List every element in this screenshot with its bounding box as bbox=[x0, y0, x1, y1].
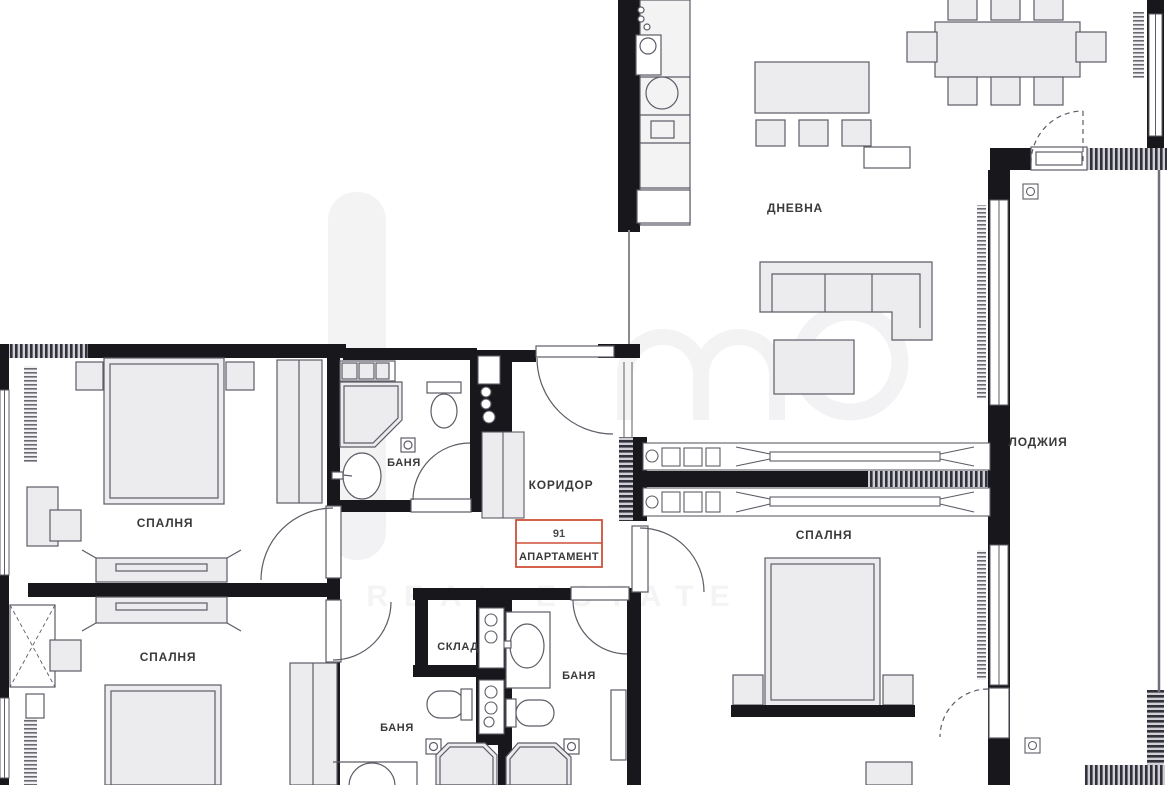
door-frame bbox=[326, 506, 341, 578]
bed bbox=[765, 558, 880, 706]
toilet-tank-icon bbox=[461, 689, 472, 720]
valve-icon bbox=[484, 717, 494, 727]
cabinet bbox=[662, 448, 680, 466]
cabinet bbox=[684, 492, 702, 512]
loggia-fixtures bbox=[1023, 184, 1040, 753]
kitchen-sink-icon bbox=[646, 77, 678, 109]
balcony-door-sill bbox=[1036, 152, 1082, 165]
nightstand bbox=[226, 362, 254, 390]
floor-plan: REAL ESTATE bbox=[0, 0, 1170, 785]
door-frame bbox=[571, 587, 629, 600]
door-frame bbox=[411, 499, 471, 512]
wall-hatched bbox=[1085, 765, 1165, 785]
bar-stool bbox=[799, 120, 828, 146]
vanity-drawer bbox=[376, 363, 389, 379]
chair bbox=[50, 640, 81, 671]
entry-door-frame bbox=[536, 346, 614, 357]
wall bbox=[340, 500, 413, 512]
shower bbox=[340, 382, 402, 447]
sideboard bbox=[755, 62, 869, 113]
dining-table bbox=[935, 22, 1080, 77]
cabinet bbox=[662, 492, 680, 512]
loggia-door-arc bbox=[940, 689, 988, 737]
dresser-mark bbox=[227, 623, 241, 631]
dining-chair bbox=[1076, 32, 1106, 62]
cabinet bbox=[26, 694, 44, 718]
watermark-shape bbox=[625, 337, 777, 420]
dining-chair bbox=[991, 0, 1020, 20]
wall-hatched bbox=[619, 437, 633, 521]
fixture-icon bbox=[646, 450, 658, 462]
toilet-tank-icon bbox=[427, 382, 461, 393]
wall bbox=[415, 597, 428, 667]
door-frame bbox=[632, 526, 648, 592]
bath1-door-arc bbox=[413, 443, 470, 500]
dining-chair bbox=[948, 77, 977, 105]
dresser-mark bbox=[82, 623, 96, 631]
valve-icon bbox=[481, 399, 491, 409]
room-label-corridor: КОРИДОР bbox=[529, 478, 594, 492]
bed bbox=[104, 358, 224, 504]
room-label-storage: СКЛАД bbox=[437, 641, 479, 653]
shower bbox=[506, 743, 571, 785]
wall bbox=[327, 358, 340, 510]
wall bbox=[327, 576, 340, 602]
watermark: REAL ESTATE bbox=[328, 192, 900, 613]
nightstand bbox=[733, 675, 763, 705]
room-label-bedroom2: СПАЛНЯ bbox=[140, 650, 197, 664]
apartment-number: 91 bbox=[553, 528, 565, 540]
cabinet bbox=[706, 492, 720, 512]
vanity-drawer bbox=[359, 363, 374, 379]
bar-stool bbox=[842, 120, 871, 146]
cabinet bbox=[706, 448, 720, 466]
radiator bbox=[24, 366, 37, 462]
shaft-panel bbox=[611, 690, 626, 760]
dining-chair bbox=[1034, 0, 1063, 20]
dining-chair bbox=[1034, 77, 1063, 105]
wall bbox=[343, 348, 477, 360]
bedroom3 bbox=[731, 558, 915, 785]
room-label-bath2: БАНЯ bbox=[380, 722, 414, 734]
knob-icon bbox=[638, 7, 644, 13]
room-label-bedroom1: СПАЛНЯ bbox=[137, 516, 194, 530]
valve-icon bbox=[485, 614, 497, 626]
valve-icon bbox=[485, 702, 497, 714]
knob-icon bbox=[644, 24, 650, 30]
nightstand bbox=[883, 675, 913, 705]
bath2 bbox=[333, 689, 497, 785]
nightstand bbox=[76, 362, 103, 390]
sink-icon bbox=[349, 763, 395, 785]
bed bbox=[105, 685, 221, 785]
bench bbox=[866, 762, 912, 785]
vanity-drawer bbox=[342, 363, 357, 379]
bath3 bbox=[501, 612, 626, 785]
chair bbox=[50, 510, 81, 541]
wardrobe-rail bbox=[770, 497, 940, 506]
meter-box bbox=[478, 356, 500, 384]
apartment-label: АПАРТАМЕНТ bbox=[519, 551, 599, 563]
bedroom1-door-arc bbox=[261, 508, 333, 580]
toilet-icon bbox=[516, 700, 554, 726]
entry-door-arc bbox=[537, 358, 613, 434]
appliance-icon bbox=[651, 121, 674, 138]
bar-stool bbox=[756, 120, 785, 146]
valve-icon bbox=[485, 631, 497, 643]
room-label-loggia: ЛОДЖИЯ bbox=[1008, 435, 1067, 449]
radiator bbox=[24, 718, 37, 785]
valve-icon bbox=[483, 411, 495, 423]
headboard bbox=[731, 705, 915, 717]
floor-drain-icon bbox=[1025, 738, 1040, 753]
wall-hatched bbox=[0, 344, 88, 358]
wall bbox=[627, 590, 641, 785]
bedroom2 bbox=[10, 597, 337, 785]
room-label-bath1: БАНЯ bbox=[387, 457, 421, 469]
floor-plan-svg: REAL ESTATE bbox=[0, 0, 1170, 785]
radiator bbox=[1133, 12, 1144, 78]
toilet-icon bbox=[427, 691, 464, 718]
dresser-mark bbox=[82, 550, 96, 558]
toilet-tank-icon bbox=[506, 699, 516, 727]
room-label-bath3: БАНЯ bbox=[562, 670, 596, 682]
shower bbox=[436, 743, 497, 785]
stove-burner-icon bbox=[640, 38, 656, 54]
window-sill-ticks bbox=[977, 550, 986, 680]
room-label-bedroom3: СПАЛНЯ bbox=[796, 528, 853, 542]
dresser-mark bbox=[227, 550, 241, 558]
tap-icon bbox=[332, 472, 343, 479]
door-frame bbox=[326, 600, 341, 662]
valve-icon bbox=[481, 387, 491, 397]
fixture-icon bbox=[646, 496, 658, 508]
bedroom1 bbox=[27, 358, 322, 582]
knob-icon bbox=[638, 16, 644, 22]
dining-chair bbox=[907, 32, 937, 62]
dining-chair bbox=[948, 0, 977, 20]
wall bbox=[642, 471, 868, 487]
floor-drain-icon bbox=[401, 438, 415, 452]
wall-hatched bbox=[1085, 148, 1167, 170]
wall bbox=[28, 583, 328, 597]
valve-icon bbox=[485, 686, 497, 698]
wall bbox=[506, 350, 536, 362]
apartment-badge: 91 АПАРТАМЕНТ bbox=[516, 520, 602, 567]
loggia-door-frame bbox=[989, 688, 1009, 738]
wardrobe-rail bbox=[770, 452, 940, 461]
cabinet bbox=[684, 448, 702, 466]
bath1 bbox=[332, 361, 461, 499]
wall-hatched bbox=[868, 471, 990, 487]
wall bbox=[513, 588, 573, 600]
window-sill-ticks bbox=[977, 205, 986, 398]
dining-chair bbox=[991, 77, 1020, 105]
floor-drain-icon bbox=[1023, 184, 1038, 199]
wall bbox=[990, 148, 1032, 170]
tv-stand bbox=[864, 147, 910, 168]
room-label-living: ДНЕВНА bbox=[767, 201, 823, 215]
sink-icon bbox=[510, 624, 544, 668]
cabinet bbox=[637, 190, 690, 223]
wall bbox=[88, 344, 346, 358]
coffee-table bbox=[774, 340, 854, 394]
toilet-icon bbox=[431, 394, 457, 428]
